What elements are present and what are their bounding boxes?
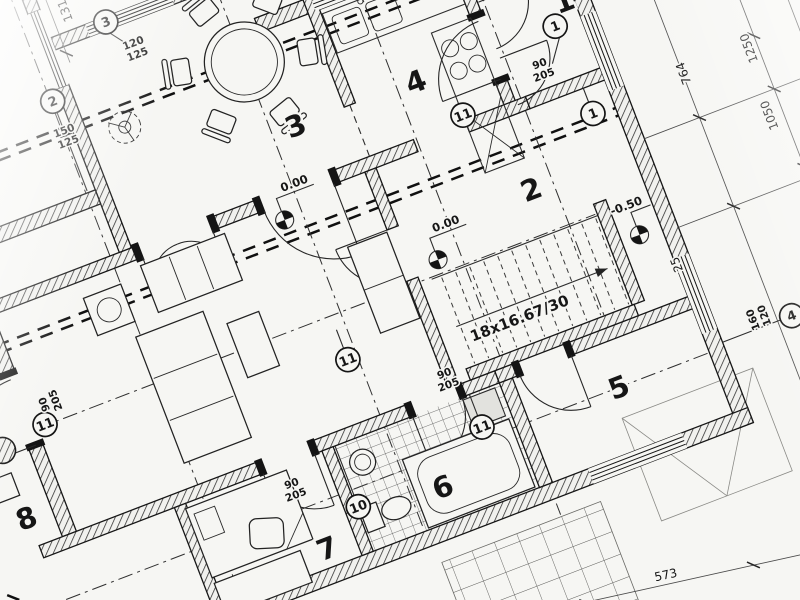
dining-chair <box>170 58 192 86</box>
svg-text:573: 573 <box>653 566 678 585</box>
opening-size-tag: 160 120 <box>744 303 774 332</box>
dimension-label: 573 <box>653 566 678 585</box>
dining-chair-back <box>162 59 172 89</box>
position-marker: 11 <box>332 344 363 375</box>
svg-text:131: 131 <box>54 0 75 24</box>
room-label-2: 2 <box>516 170 547 209</box>
room-label-8: 8 <box>11 499 42 538</box>
opening-size-tag: 120 125 <box>121 34 150 64</box>
opening-size-tag: 90 205 <box>527 55 556 85</box>
coffee-table <box>227 311 280 377</box>
stove-burners <box>439 30 488 82</box>
dimension-label: 764 <box>673 60 694 86</box>
roof-outline <box>622 368 792 521</box>
svg-text:764: 764 <box>673 60 694 86</box>
svg-text:-0.50: -0.50 <box>608 193 644 218</box>
blueprint-photo: 18x16.67/30 <box>0 0 800 600</box>
dimension-label: 131 <box>54 0 75 24</box>
hatched-circle-marker <box>0 434 19 468</box>
desk-chair <box>249 517 285 549</box>
floor-plan-drawing: 18x16.67/30 <box>0 0 800 600</box>
svg-text:1050: 1050 <box>757 99 781 133</box>
faucet <box>357 0 364 5</box>
window <box>588 433 687 484</box>
position-marker: 11 <box>30 409 61 440</box>
room-label-5: 5 <box>603 368 634 407</box>
room-label-3: 3 <box>280 106 311 145</box>
kitchen-sink-basin <box>365 0 404 32</box>
dimension-label: 1050 <box>757 99 781 133</box>
level-marker: 0.00 <box>416 210 478 271</box>
side-table <box>83 284 135 336</box>
position-marker: 1 <box>577 98 608 129</box>
opening-size-tag: 90 205 <box>35 388 65 417</box>
sofa <box>140 233 242 312</box>
room-label-7: 7 <box>312 529 343 568</box>
dining-chair <box>297 38 319 66</box>
dining-table <box>193 10 296 113</box>
room-label-4: 4 <box>400 62 431 101</box>
